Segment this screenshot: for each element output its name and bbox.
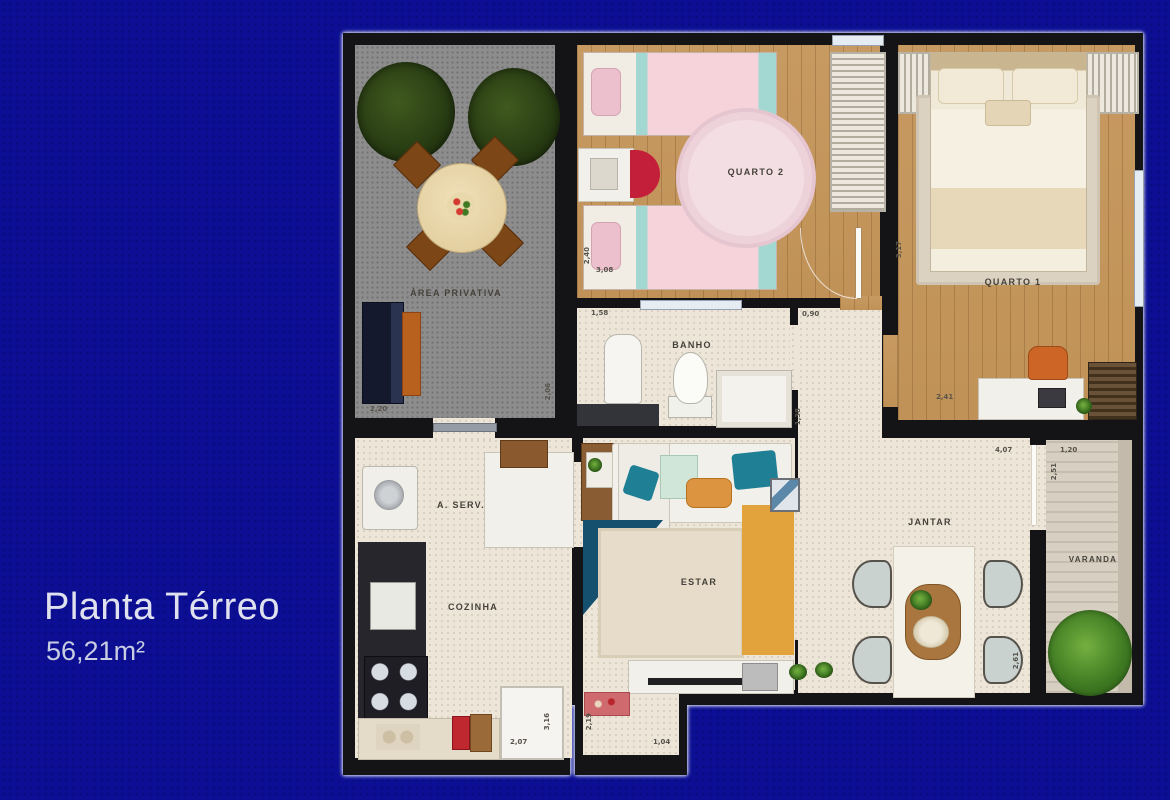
patio-lounger-frame (402, 312, 421, 396)
counter-dishes (376, 724, 420, 750)
laundry-basket (500, 440, 548, 468)
room-label-area-privativa: ÁREA PRIVATIVA (410, 288, 502, 298)
plant-icon (789, 664, 807, 680)
washer-drum-icon (374, 480, 404, 510)
plan-area: 56,21m² (46, 636, 145, 667)
bed-pillow (1012, 68, 1078, 104)
plant-icon (357, 62, 455, 162)
plant-icon (815, 662, 833, 678)
desk-laptop (1038, 388, 1066, 408)
estar-rug (598, 528, 744, 658)
window-quarto2 (832, 35, 884, 46)
dim-label: 2,20 (370, 405, 387, 413)
room-label-a-serv: A. SERV. (437, 500, 485, 510)
stove (364, 656, 428, 720)
media-device (742, 663, 778, 691)
floor-hall (798, 308, 882, 443)
dim-label: 2,19 (585, 713, 593, 730)
estar-rug-orange (742, 505, 794, 655)
bed-pillow (591, 68, 621, 116)
wall-mirror (770, 478, 800, 512)
dim-label: 2,51 (1050, 463, 1058, 480)
dim-label: 2,07 (510, 738, 527, 746)
sofa-cushion-orange (686, 478, 732, 508)
quarto1-desk (978, 378, 1084, 420)
round-rug (676, 108, 816, 248)
plant-icon (588, 458, 602, 472)
red-canister (452, 716, 470, 750)
passage-quarto2-door (840, 296, 882, 310)
bed-pillow (938, 68, 1004, 104)
dining-chair (852, 560, 892, 608)
fridge (500, 686, 564, 760)
plant-icon (910, 590, 932, 610)
shower-tray (716, 370, 792, 428)
kitchen-sink (370, 582, 416, 630)
patio-lounger (362, 302, 404, 404)
room-label-cozinha: COZINHA (448, 602, 498, 612)
passage-estar-jantar (793, 510, 800, 640)
varanda-door-leaf (1032, 445, 1036, 525)
desk-items (590, 158, 618, 190)
banho-counter (577, 404, 659, 426)
dim-label: 3,17 (895, 241, 903, 258)
room-label-jantar: JANTAR (908, 517, 952, 527)
gate-area-privativa (433, 423, 497, 432)
room-label-quarto-1: QUARTO 1 (985, 277, 1042, 287)
room-label-quarto-2: QUARTO 2 (728, 167, 785, 177)
dining-chair (852, 636, 892, 684)
table-plate (913, 616, 949, 648)
toilet-bowl (673, 352, 708, 404)
dim-label: 3,08 (596, 266, 613, 274)
dining-chair (983, 560, 1023, 608)
floor-plan-image: { "title": { "name": "Planta Térreo", "a… (0, 0, 1170, 800)
table-flowers-icon (447, 192, 475, 220)
dim-label: 4,07 (995, 446, 1012, 454)
quarto2-wardrobe (830, 52, 886, 212)
dim-label: 1,58 (591, 309, 608, 317)
cutting-board (470, 714, 492, 752)
dim-label: 2,41 (936, 393, 953, 401)
dim-label: 2,40 (583, 247, 591, 264)
passage-quarto1-door (883, 335, 898, 407)
dim-label: 1,04 (653, 738, 670, 746)
dim-label: 1,20 (1060, 446, 1077, 454)
room-label-banho: BANHO (672, 340, 712, 350)
bathroom-sink (604, 334, 642, 404)
dim-label: 1,38 (794, 408, 802, 425)
window-banho (640, 300, 742, 310)
quarto1-shelf (1088, 362, 1137, 420)
dim-label: 2,61 (1012, 652, 1020, 669)
room-label-estar: ESTAR (681, 577, 717, 587)
dim-label: 3,16 (543, 713, 551, 730)
bed-pillow (591, 222, 621, 270)
dim-label: 0,90 (802, 310, 819, 318)
plant-icon (1076, 398, 1092, 414)
plant-icon (1048, 610, 1132, 696)
window-quarto1 (1134, 170, 1144, 307)
dim-label: 2,06 (544, 383, 552, 400)
plan-title: Planta Térreo (44, 586, 280, 629)
room-label-varanda: VARANDA (1069, 555, 1118, 564)
bed-cushion (985, 100, 1031, 126)
desk-chair (1028, 346, 1068, 380)
